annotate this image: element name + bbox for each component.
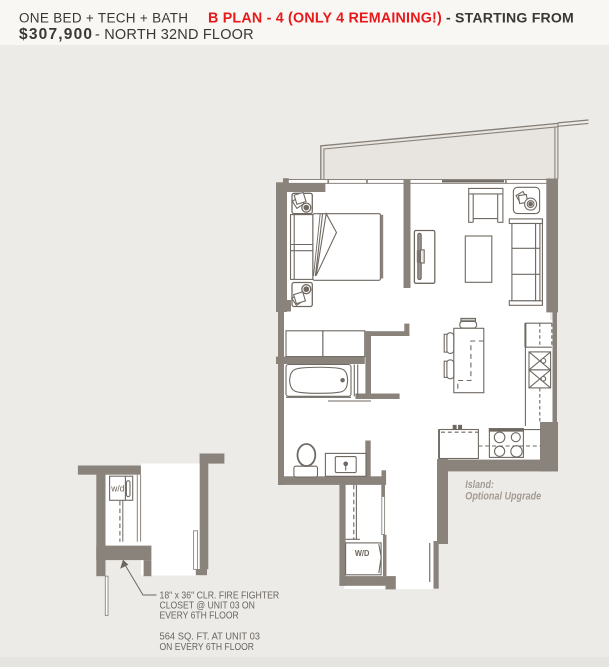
svg-text:$307,900: $307,900 <box>19 26 93 43</box>
svg-text:- STARTING FROM: - STARTING FROM <box>446 10 574 26</box>
svg-text:EVERY 6TH FLOOR: EVERY 6TH FLOOR <box>160 610 239 621</box>
svg-text:w/d: w/d <box>110 483 124 493</box>
svg-text:Optional Upgrade: Optional Upgrade <box>465 491 541 503</box>
svg-text:ONE BED + TECH + BATH: ONE BED + TECH + BATH <box>19 11 188 26</box>
svg-text:W/D: W/D <box>355 549 370 558</box>
svg-text:- NORTH 32ND FLOOR: - NORTH 32ND FLOOR <box>95 27 254 43</box>
svg-text:Island:: Island: <box>465 479 494 491</box>
svg-text:ON EVERY 6TH FLOOR: ON EVERY 6TH FLOOR <box>160 642 255 653</box>
svg-text:B PLAN - 4 (ONLY 4 REMAINING!): B PLAN - 4 (ONLY 4 REMAINING!) <box>208 11 442 27</box>
